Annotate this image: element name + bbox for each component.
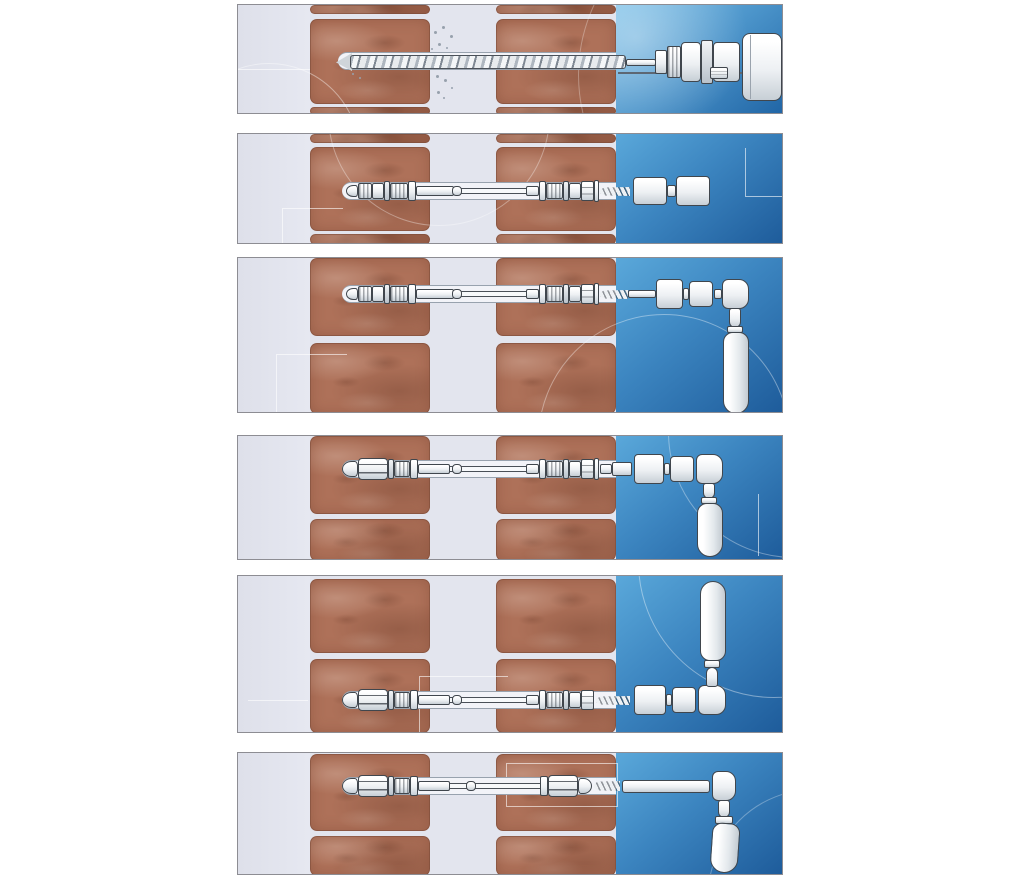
expansion-sleeve-far (546, 183, 563, 199)
expansion-sleeve-near (358, 183, 372, 199)
ratchet-head (712, 771, 736, 801)
square-drive-bit (600, 464, 612, 474)
ratchet-handle (709, 822, 740, 874)
sleeve-segment (569, 692, 581, 708)
drive-shaft (628, 290, 656, 298)
brick (496, 519, 616, 560)
sleeve-tube (526, 464, 539, 474)
step-panel-4 (237, 435, 783, 560)
square-drive-bit (714, 289, 722, 299)
expansion-sleeve-far (546, 286, 563, 302)
washer (594, 458, 599, 480)
ratchet-head (722, 279, 749, 309)
tie-tip (346, 185, 358, 197)
sleeve-segment (569, 461, 581, 477)
decor-line (238, 69, 310, 70)
installation-diagram (0, 0, 1020, 880)
sleeve-tube (526, 695, 539, 705)
tie-tip-expanded (342, 778, 358, 794)
hex-nut (581, 284, 594, 304)
expansion-sleeve-far (546, 692, 563, 708)
rod-stop (466, 781, 476, 791)
drive-shaft (622, 780, 710, 793)
step-panel-2 (237, 133, 783, 244)
adapter-block (689, 281, 713, 307)
brick (496, 234, 616, 244)
adapter-link (667, 185, 676, 197)
collar (410, 459, 418, 479)
adapter-socket (634, 685, 666, 715)
brick (310, 5, 430, 14)
sleeve-tube (418, 695, 450, 705)
step-panel-6 (237, 752, 783, 875)
adapter-socket (634, 454, 664, 484)
chuck-collar (667, 46, 681, 78)
adapter-socket (656, 279, 683, 309)
connecting-rod (454, 291, 526, 297)
masonry-drill-bit (350, 55, 626, 69)
collar (539, 459, 546, 479)
collar (540, 776, 548, 796)
tie-tip-expanded (342, 461, 358, 477)
drive-blade (600, 290, 628, 299)
handle-collar (704, 660, 720, 668)
sleeve-tube (526, 289, 539, 299)
collar (408, 181, 416, 201)
sleeve-segment (372, 183, 384, 199)
decor-line (276, 354, 347, 413)
decor-line (745, 148, 782, 197)
expansion-shells-far (548, 775, 578, 797)
adapter-socket (633, 177, 667, 205)
sleeve-segment (569, 183, 581, 199)
chuck-ring (655, 50, 667, 74)
drive-blade (594, 781, 620, 791)
drive-blade (600, 187, 630, 196)
rod-stop (452, 289, 462, 299)
sleeve-segment (390, 183, 408, 199)
tie-tip-expanded (342, 692, 358, 708)
collar (539, 284, 546, 304)
washer (594, 283, 599, 305)
ratchet-neck (706, 667, 718, 687)
tie-tip (346, 288, 358, 300)
chuck-body (681, 42, 701, 82)
adapter-block (676, 176, 710, 206)
drill-shank (626, 59, 656, 66)
sleeve-segment (372, 286, 384, 302)
brick (310, 519, 430, 560)
sleeve-tube (418, 464, 450, 474)
expansion-shells (358, 689, 388, 711)
adapter-block (672, 687, 696, 713)
step-panel-5 (237, 575, 783, 733)
washer (594, 180, 599, 202)
inner-leaf (238, 436, 310, 559)
drill-body (742, 33, 782, 101)
sleeve-tube (418, 781, 450, 791)
expansion-sleeve-near (358, 286, 372, 302)
rod-stop (452, 464, 462, 474)
expansion-shells (358, 458, 388, 480)
ratchet-handle-up (700, 581, 726, 661)
decor-line (758, 494, 782, 556)
sleeve-segment (394, 692, 410, 708)
inner-leaf (238, 576, 310, 732)
rod-stop (452, 695, 462, 705)
collar (410, 776, 418, 796)
chuck-key-lug (710, 67, 728, 79)
collar (408, 284, 416, 304)
rod-stop (452, 186, 462, 196)
drive-shaft (612, 462, 632, 476)
brick (496, 836, 616, 875)
ratchet-neck (729, 308, 741, 328)
decor-line (248, 700, 308, 701)
adapter-block (670, 456, 694, 482)
ratchet-handle (697, 503, 723, 557)
sleeve-segment (390, 286, 408, 302)
expansion-shells (358, 775, 388, 797)
connecting-rod (450, 783, 540, 789)
brick (310, 836, 430, 875)
decor-line (282, 208, 343, 244)
hex-nut (581, 459, 594, 479)
collar (539, 181, 546, 201)
brick (310, 579, 430, 653)
inner-leaf (238, 753, 310, 874)
drill-body-seam (750, 35, 751, 99)
drive-blade (596, 696, 630, 705)
expansion-sleeve-far (546, 461, 563, 477)
connecting-rod (454, 188, 526, 194)
step-panel-3 (237, 257, 783, 413)
hex-nut (581, 181, 594, 201)
ratchet-handle (723, 332, 749, 413)
step-panel-1 (237, 4, 783, 114)
brick (496, 579, 616, 653)
sleeve-segment (569, 286, 581, 302)
collar (410, 690, 418, 710)
ratchet-head (696, 454, 723, 484)
collar (539, 690, 546, 710)
sleeve-segment (394, 778, 410, 794)
hex-nut (581, 690, 594, 710)
sleeve-tube (416, 186, 454, 196)
ratchet-head (698, 685, 726, 715)
sleeve-tube (416, 289, 454, 299)
sleeve-segment (394, 461, 410, 477)
sleeve-tube (526, 186, 539, 196)
